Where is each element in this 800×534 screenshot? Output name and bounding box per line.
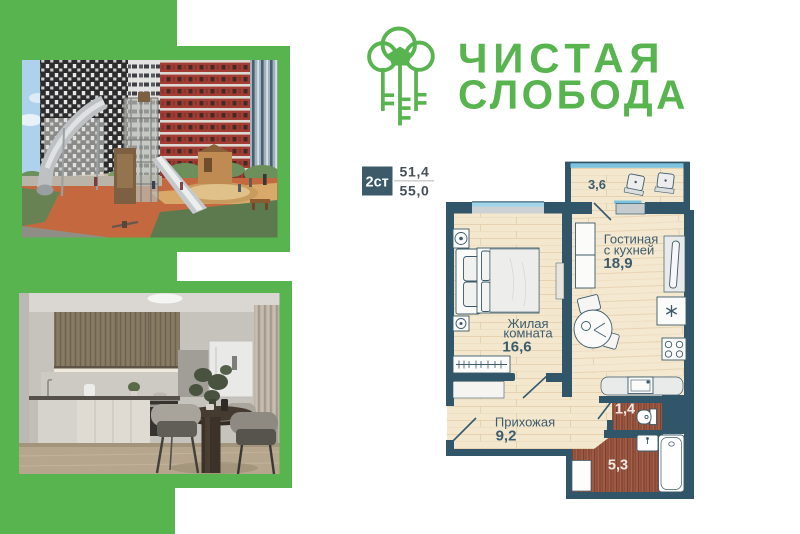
svg-text:9,2: 9,2 — [496, 428, 517, 445]
svg-text:1,4: 1,4 — [615, 402, 635, 418]
svg-text:51,4: 51,4 — [400, 164, 430, 180]
svg-text:3,6: 3,6 — [588, 177, 606, 192]
svg-text:55,0: 55,0 — [400, 182, 430, 198]
svg-text:16,6: 16,6 — [502, 339, 531, 356]
svg-text:18,9: 18,9 — [603, 255, 632, 272]
svg-text:5,3: 5,3 — [608, 458, 628, 474]
svg-text:СЛОБОДА: СЛОБОДА — [458, 72, 689, 118]
svg-text:2ст: 2ст — [366, 175, 389, 191]
